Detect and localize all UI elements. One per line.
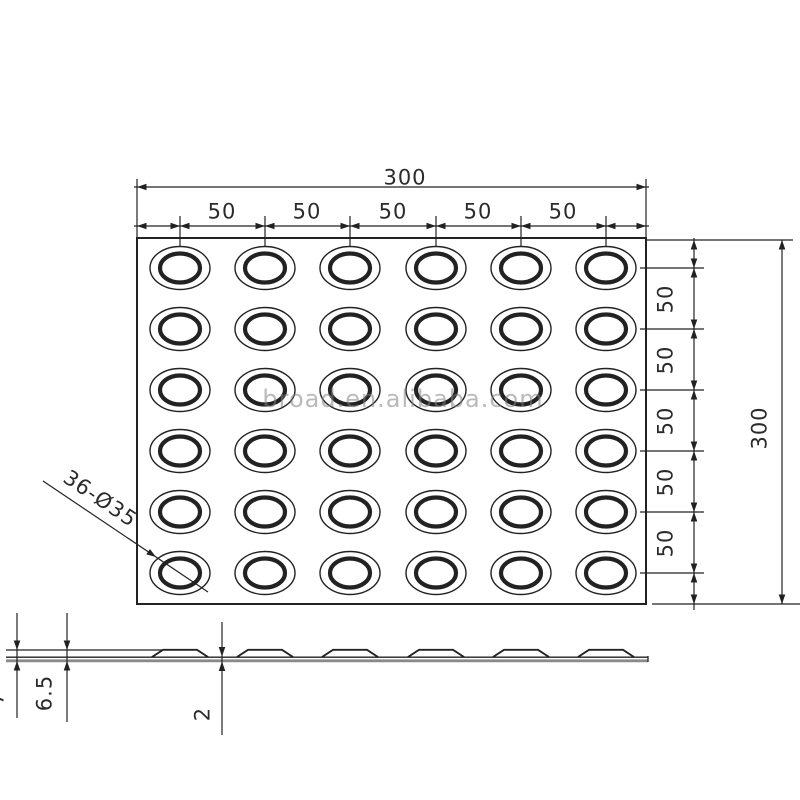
dim-base-thickness: 2 <box>193 707 214 721</box>
dimension-arrow <box>779 595 786 605</box>
tactile-dot-inner <box>501 315 541 344</box>
tactile-dot-inner <box>330 254 370 283</box>
dimension-arrow <box>606 223 616 230</box>
dimension-arrow <box>691 320 698 330</box>
tactile-dot-inner <box>416 315 456 344</box>
dimension-arrow <box>691 329 698 339</box>
tactile-dot-inner <box>586 437 626 466</box>
dimension-arrow <box>341 223 351 230</box>
tactile-dot-inner <box>330 498 370 527</box>
dimension-arrow <box>427 223 437 230</box>
dim-col-spacing-3: 50 <box>379 202 408 223</box>
tactile-dot-inner <box>416 437 456 466</box>
tactile-dot-inner <box>330 315 370 344</box>
dome-profile <box>408 650 464 657</box>
dome-profile <box>578 650 634 657</box>
dimension-arrow <box>637 184 647 191</box>
tactile-dot-inner <box>330 437 370 466</box>
dimension-arrow <box>171 223 181 230</box>
dim-row-spacing-4: 50 <box>656 468 677 497</box>
dimension-arrow <box>691 595 698 605</box>
tactile-dot-inner <box>416 559 456 588</box>
tactile-dot-inner <box>160 498 200 527</box>
dome-profile <box>237 650 293 657</box>
dimension-arrow <box>691 442 698 452</box>
dimension-arrow <box>691 512 698 522</box>
dim-overall-height: 300 <box>750 406 771 449</box>
dimension-arrow <box>637 223 647 230</box>
dimension-arrow <box>14 641 21 651</box>
tactile-dot-inner <box>160 254 200 283</box>
dim-row-spacing-5: 50 <box>656 529 677 558</box>
tactile-dot-inner <box>330 559 370 588</box>
tactile-dot-inner <box>245 437 285 466</box>
dimension-arrow <box>256 223 266 230</box>
tactile-dot-inner <box>416 254 456 283</box>
dimension-arrow <box>691 381 698 391</box>
dimension-arrow <box>691 451 698 461</box>
watermark: broad.en.alibaba.com <box>262 385 543 413</box>
tactile-dot-inner <box>245 559 285 588</box>
dimension-arrow <box>691 390 698 400</box>
dome-profile <box>493 650 549 657</box>
tactile-dot-inner <box>160 376 200 405</box>
dim-overall-width: 300 <box>383 168 426 189</box>
dim-col-spacing-1: 50 <box>208 202 237 223</box>
tactile-dot-inner <box>586 315 626 344</box>
dimension-arrow <box>64 641 71 651</box>
dimension-arrow <box>436 223 446 230</box>
dimension-arrow <box>691 240 698 250</box>
tactile-dot-inner <box>586 498 626 527</box>
tactile-dot-inner <box>245 315 285 344</box>
tactile-dot-inner <box>245 498 285 527</box>
tactile-dot-inner <box>501 254 541 283</box>
dim-clipped-left: 7 <box>0 691 8 705</box>
dimension-arrow <box>691 503 698 513</box>
dimension-arrow <box>691 573 698 583</box>
tactile-dot-inner <box>245 254 285 283</box>
dome-profile <box>322 650 378 657</box>
tactile-dot-inner <box>501 559 541 588</box>
dim-row-spacing-3: 50 <box>656 407 677 436</box>
plate-outline <box>137 238 646 604</box>
dimension-arrow <box>219 662 226 672</box>
dimension-arrow <box>64 661 71 671</box>
dim-col-spacing-2: 50 <box>293 202 322 223</box>
tactile-dot-inner <box>160 315 200 344</box>
dim-overall-thickness: 6.5 <box>35 675 56 711</box>
dimension-arrow <box>779 240 786 250</box>
tactile-dot-inner <box>586 559 626 588</box>
dimension-arrow <box>219 647 226 657</box>
tactile-dot-inner <box>416 498 456 527</box>
tactile-dot-inner <box>586 254 626 283</box>
dim-row-spacing-1: 50 <box>656 285 677 314</box>
dimension-arrow <box>512 223 522 230</box>
dimension-arrow <box>597 223 607 230</box>
dome-profile <box>152 650 208 657</box>
dimension-arrow <box>521 223 531 230</box>
dimension-arrow <box>137 184 147 191</box>
dimension-arrow <box>265 223 275 230</box>
tactile-dot-inner <box>586 376 626 405</box>
dimension-arrow <box>691 268 698 278</box>
dim-col-spacing-4: 50 <box>464 202 493 223</box>
dimension-arrow <box>137 223 147 230</box>
tactile-dot-inner <box>501 498 541 527</box>
tactile-dot-inner <box>160 437 200 466</box>
tactile-dot-inner <box>501 437 541 466</box>
dimension-arrow <box>350 223 360 230</box>
dimension-arrow <box>14 661 21 671</box>
tactile-plate-technical-drawing: 300 50 50 50 50 50 50 50 50 50 50 300 36… <box>0 0 800 800</box>
dimension-arrow <box>180 223 190 230</box>
dimension-arrow <box>691 564 698 574</box>
dim-col-spacing-5: 50 <box>549 202 578 223</box>
dimension-arrow <box>691 259 698 269</box>
dim-row-spacing-2: 50 <box>656 346 677 375</box>
leader-arrow <box>146 549 158 560</box>
